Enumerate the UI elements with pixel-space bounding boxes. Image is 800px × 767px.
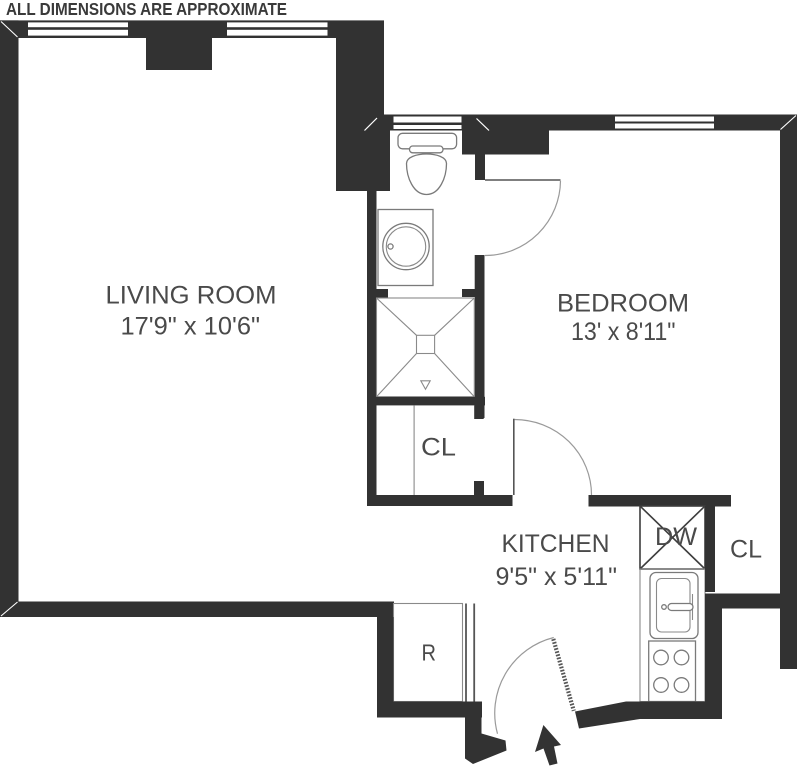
svg-text:R: R (422, 640, 437, 666)
svg-text:BEDROOM: BEDROOM (557, 290, 689, 318)
svg-text:17'9" x 10'6": 17'9" x 10'6" (121, 313, 261, 341)
svg-text:DW: DW (655, 523, 697, 551)
svg-text:CL: CL (730, 536, 762, 564)
svg-text:LIVING ROOM: LIVING ROOM (106, 282, 277, 310)
svg-text:ALL DIMENSIONS ARE APPROXIMATE: ALL DIMENSIONS ARE APPROXIMATE (6, 0, 287, 19)
svg-text:KITCHEN: KITCHEN (502, 530, 610, 558)
svg-text:13' x 8'11": 13' x 8'11" (571, 318, 676, 346)
svg-text:9'5" x 5'11": 9'5" x 5'11" (496, 563, 618, 591)
svg-text:CL: CL (421, 434, 456, 462)
